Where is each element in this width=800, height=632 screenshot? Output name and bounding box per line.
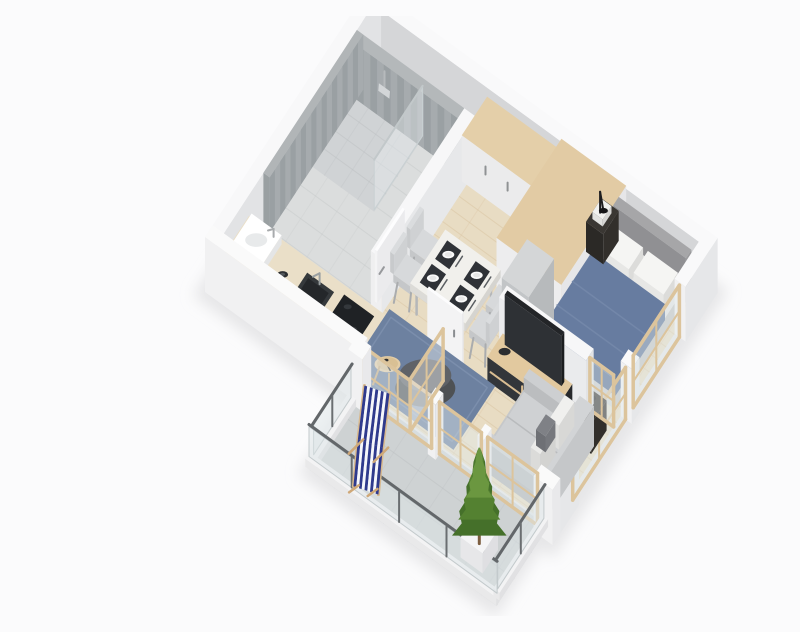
bath-tile-stripes-west-stripe [285,146,290,209]
burner-1 [344,304,352,309]
bath-tile-stripes-west-stripe [296,130,301,193]
bath-tile-stripes-west-stripe [291,138,296,201]
plate-1-inner [445,252,452,256]
bath-tile-stripes-west-stripe [358,35,363,98]
bath-tile-stripes-west-stripe [322,90,327,153]
bath-tile-stripes-west-stripe [348,51,353,114]
bath-tile-stripes-west-stripe [280,154,285,217]
bath-tile-stripes-west-stripe [270,170,275,233]
console-clock [499,348,511,355]
bath-tile-stripes-north-stripe [364,50,371,110]
bath-tile-stripes-west-stripe [306,114,311,177]
bath-tile-stripes-west-stripe [332,74,337,137]
bath-tile-stripes-west-stripe [301,122,306,185]
entry-door-east-face [462,312,464,367]
bath-tile-stripes-west-stripe [316,98,321,161]
apartment-isometric-render [40,16,800,616]
bath-tile-stripes-west-stripe [275,162,280,225]
bath-tile-stripes-north-stripe [391,69,398,129]
plate-4-inner [458,296,465,300]
chair-leg-e2b [485,344,486,367]
bath-tile-stripes-north-stripe [370,55,377,115]
bath-tile-stripes-north-stripe [431,99,438,159]
tv-screen-east-face [562,332,565,386]
plate-3-inner [429,276,436,280]
bath-tile-stripes-west-stripe [327,82,332,145]
bath-tile-stripes-west-stripe [311,106,316,169]
apartment-floorplan-3d: 3D isometric cutaway render of a studio … [40,16,800,616]
bath-tile-stripes-west-stripe [342,58,347,121]
bath-tile-stripes-west-stripe [353,43,358,106]
bath-tile-stripes-west-stripe [337,66,342,129]
chair-back-w2-south-face [390,252,394,275]
bath-tile-stripes-north-stripe [424,94,431,154]
bathroom-door-south-face [375,250,377,304]
lamp-left-head [599,208,608,214]
plate-2-inner [473,273,480,277]
bathroom-sink-basin [245,233,267,247]
chair-back-e2-south-face [486,321,490,344]
